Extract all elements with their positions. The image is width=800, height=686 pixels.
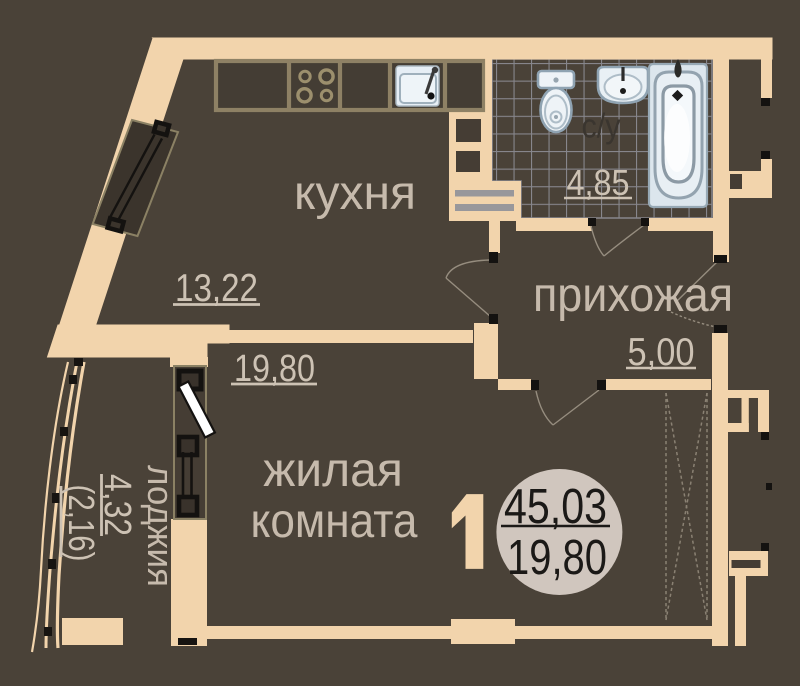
svg-text:жилая: жилая (263, 444, 403, 497)
svg-text:лоджия: лоджия (140, 465, 181, 587)
svg-text:(2,16): (2,16) (61, 485, 102, 562)
svg-text:комната: комната (251, 495, 418, 548)
svg-text:19,80: 19,80 (507, 531, 607, 585)
svg-text:прихожая: прихожая (533, 269, 733, 322)
svg-text:кухня: кухня (294, 167, 416, 220)
svg-text:с/у: с/у (582, 108, 621, 146)
